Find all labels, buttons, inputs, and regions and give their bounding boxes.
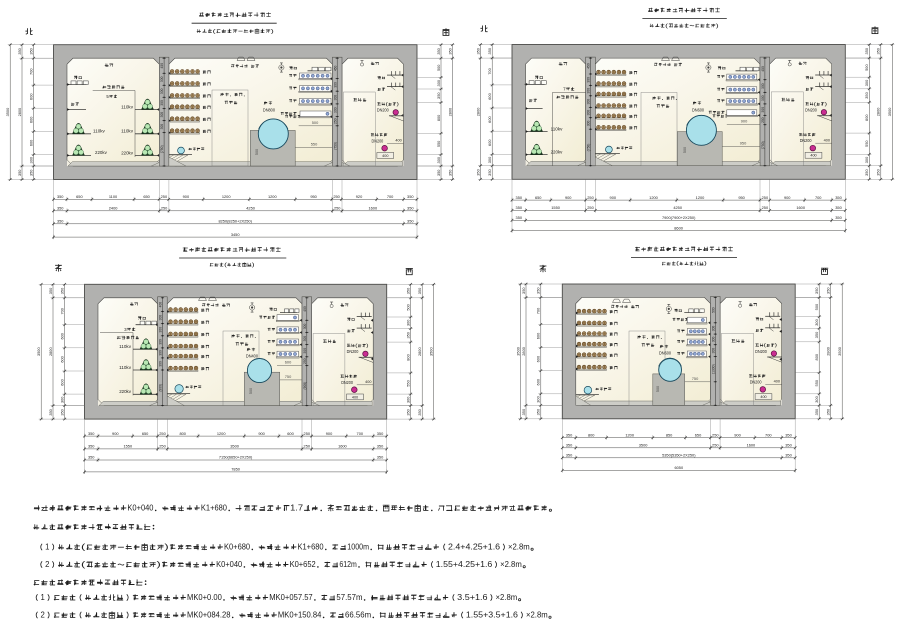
svg-text:350: 350 [864,169,869,176]
svg-text:300: 300 [864,79,869,86]
svg-text:650: 650 [535,195,542,200]
svg-text:900: 900 [734,432,741,437]
svg-text:350: 350 [487,47,492,54]
svg-text:220kv: 220kv [551,149,564,154]
svg-text:300: 300 [160,100,164,106]
svg-text:DN200: DN200 [347,349,359,354]
svg-text:550: 550 [406,379,411,386]
svg-text:8250(8250+2X250): 8250(8250+2X250) [218,219,252,224]
svg-text:750: 750 [285,374,292,379]
svg-text:300: 300 [711,326,715,332]
svg-text:900: 900 [258,431,265,436]
svg-text:300: 300 [761,107,765,113]
svg-text:612m: 612m [339,559,356,569]
svg-text:DN200: DN200 [755,349,767,354]
svg-text:600: 600 [29,116,34,123]
svg-text:350: 350 [864,91,869,98]
svg-text:950: 950 [740,141,747,146]
svg-text:700: 700 [765,432,772,437]
svg-text:3450: 3450 [231,232,240,237]
svg-text:(: ( [224,262,227,268]
svg-text:500: 500 [255,149,259,155]
svg-text:650: 650 [76,194,83,199]
svg-text:(750): (750) [333,142,337,150]
svg-text:300: 300 [29,156,34,163]
svg-text:350: 350 [876,47,881,54]
svg-text:300: 300 [406,396,411,403]
svg-text:350: 350 [785,453,792,458]
svg-text:110kv: 110kv [121,104,134,109]
svg-text:×2.8m: ×2.8m [508,542,530,552]
svg-text:900: 900 [784,195,791,200]
svg-text:3500: 3500 [230,444,239,449]
svg-text:400: 400 [824,138,830,142]
svg-text:350: 350 [436,47,441,54]
svg-text:920: 920 [356,194,363,199]
svg-text:400: 400 [395,139,401,143]
svg-text:900: 900 [183,194,190,199]
svg-text:66.56m: 66.56m [345,610,371,620]
svg-text:350: 350 [566,453,573,458]
svg-text:350: 350 [48,408,53,415]
svg-text:1550: 1550 [123,444,132,449]
svg-text:2800: 2800 [876,107,881,116]
svg-text:57.57m: 57.57m [336,592,362,602]
svg-text:800: 800 [588,432,595,437]
svg-text:300: 300 [159,361,163,367]
svg-text:DN200: DN200 [805,108,817,113]
svg-text:300: 300 [436,79,441,86]
svg-text:7150(6650+2X250): 7150(6650+2X250) [219,455,253,460]
svg-text:250: 250 [587,205,594,210]
svg-text:400: 400 [303,306,307,312]
svg-text:2800: 2800 [447,107,452,116]
svg-text:4250: 4250 [246,206,255,211]
svg-text:600: 600 [29,93,34,100]
svg-text:350: 350 [826,408,831,415]
svg-text:3500: 3500 [429,347,434,356]
svg-text:350: 350 [407,206,414,211]
svg-text:350: 350 [516,205,523,210]
svg-text:350: 350 [407,219,414,224]
svg-text:3500: 3500 [837,346,842,355]
svg-text:300: 300 [814,318,819,325]
svg-text:2800: 2800 [475,107,480,116]
svg-text:550: 550 [814,379,819,386]
svg-text:3.5+1.6: 3.5+1.6 [457,592,488,602]
svg-text:K0+652: K0+652 [290,559,316,569]
svg-text:350: 350 [407,194,414,199]
svg-text:350: 350 [475,168,480,175]
svg-text:250: 250 [761,117,765,123]
svg-text:600: 600 [487,139,492,146]
svg-text:400: 400 [365,380,371,384]
svg-text:600: 600 [536,332,541,339]
svg-text:300: 300 [587,110,591,116]
svg-text:300: 300 [814,395,819,402]
svg-text:(900): (900) [303,382,307,390]
svg-text:(750): (750) [587,144,591,152]
svg-text:300: 300 [711,336,715,342]
svg-text:450: 450 [587,63,591,69]
svg-text:300: 300 [333,82,337,88]
svg-text:250: 250 [304,431,311,436]
svg-text:600: 600 [60,332,65,339]
svg-text:1600: 1600 [338,444,347,449]
svg-text:650: 650 [143,194,150,199]
svg-text:900: 900 [610,195,617,200]
svg-text:300: 300 [160,124,164,130]
svg-text:350: 350 [17,47,22,54]
svg-text:3500: 3500 [887,107,892,116]
svg-text:350: 350 [521,287,526,294]
svg-text:1100: 1100 [109,194,118,199]
svg-text:700: 700 [536,307,541,314]
svg-text:350: 350 [487,169,492,176]
svg-text:(750): (750) [160,145,164,153]
svg-text:1: 1 [41,592,46,602]
svg-text:250: 250 [161,194,168,199]
svg-text:300: 300 [160,88,164,94]
svg-text:300: 300 [761,83,765,89]
svg-text:500: 500 [406,303,411,310]
svg-text:400: 400 [382,154,388,158]
svg-text:350: 350 [566,432,573,437]
svg-text:2800: 2800 [48,347,53,356]
svg-text:300: 300 [406,319,411,326]
svg-text:350: 350 [566,443,573,448]
svg-text:DN200: DN200 [377,108,389,113]
svg-text:300: 300 [333,95,337,101]
svg-text:2800: 2800 [417,347,422,356]
svg-text:7900(7900+2X250): 7900(7900+2X250) [662,215,696,220]
svg-text:220kv: 220kv [121,150,134,155]
svg-text:7850: 7850 [231,467,240,472]
svg-text:DN200: DN200 [750,380,762,385]
svg-text:110kv: 110kv [119,344,132,349]
svg-text:300: 300 [160,76,164,82]
svg-text:1.55+3.5+1.6: 1.55+3.5+1.6 [466,610,519,620]
svg-text:DN400: DN400 [246,354,258,359]
svg-text:300: 300 [60,396,65,403]
svg-text:400: 400 [760,395,766,399]
svg-text:2800: 2800 [17,107,22,116]
svg-text:600: 600 [536,355,541,362]
svg-text:5: 5 [106,94,109,99]
svg-text:300: 300 [761,95,765,101]
svg-text:3: 3 [124,327,127,333]
svg-text:700: 700 [815,195,822,200]
svg-text:600: 600 [287,431,294,436]
svg-text:MK0+0.00: MK0+0.00 [187,592,222,602]
svg-text:800: 800 [864,114,869,121]
svg-text:600: 600 [487,92,492,99]
svg-text:250: 250 [333,118,337,124]
svg-text:500: 500 [656,386,660,392]
svg-text:300: 300 [536,395,541,402]
svg-text:400: 400 [774,380,780,384]
svg-text:250: 250 [712,443,719,448]
svg-text:300: 300 [587,77,591,83]
svg-text:700: 700 [60,307,65,314]
svg-text:1: 1 [45,542,50,552]
svg-text:350: 350 [29,47,34,54]
svg-text:350: 350 [377,444,384,449]
svg-text:1550: 1550 [551,205,560,210]
svg-text:550: 550 [436,140,441,147]
svg-text:800: 800 [179,431,186,436]
svg-text:(: ( [81,542,86,552]
svg-text:300: 300 [159,339,163,345]
svg-text:): ) [252,262,255,268]
svg-text:DN600: DN600 [692,108,704,113]
svg-text:250: 250 [303,358,307,364]
svg-text:350: 350 [876,168,881,175]
svg-text:350: 350 [814,287,819,294]
svg-text:450: 450 [761,66,765,72]
svg-text:2: 2 [41,610,46,620]
svg-text:800: 800 [814,353,819,360]
svg-text:350: 350 [835,205,842,210]
svg-text:MK0+150.84: MK0+150.84 [278,610,322,620]
svg-text:350: 350 [447,47,452,54]
svg-text:250: 250 [304,444,311,449]
svg-text:6050: 6050 [674,465,683,470]
svg-text:700: 700 [487,67,492,74]
svg-text:×2.8m: ×2.8m [496,592,518,602]
svg-text:DN800: DN800 [263,108,275,113]
svg-text:300: 300 [160,112,164,118]
svg-text:500: 500 [814,303,819,310]
svg-text:1200: 1200 [217,431,226,436]
svg-text:300: 300 [159,315,163,321]
svg-text:250: 250 [159,444,166,449]
svg-text:350: 350 [436,92,441,99]
svg-text:350: 350 [88,455,95,460]
svg-text:350: 350 [60,287,65,294]
svg-text:800: 800 [436,114,441,121]
svg-text:250: 250 [159,431,166,436]
svg-text:(: ( [665,23,668,29]
svg-text:250: 250 [161,206,168,211]
svg-text:110kv: 110kv [119,365,132,370]
svg-text:250: 250 [587,195,594,200]
svg-text:500: 500 [436,64,441,71]
svg-text:): ) [704,261,707,267]
svg-text:650: 650 [142,431,149,436]
svg-text:400: 400 [810,154,816,158]
svg-text:1200: 1200 [649,195,658,200]
svg-text:7: 7 [563,87,566,93]
svg-text:350: 350 [406,331,411,338]
svg-text:400: 400 [352,395,358,399]
svg-text:DN200: DN200 [341,380,353,385]
svg-text:350: 350 [814,331,819,338]
svg-text:1200: 1200 [222,194,231,199]
svg-text:350: 350 [447,169,452,176]
svg-text:2: 2 [45,559,50,569]
svg-text:300: 300 [303,336,307,342]
svg-text:600: 600 [60,378,65,385]
svg-text:220kv: 220kv [119,389,132,394]
svg-text:DN200: DN200 [800,138,812,143]
svg-text:550: 550 [864,140,869,147]
svg-text:1.55+4.25+1.6: 1.55+4.25+1.6 [436,559,493,569]
svg-text:): ) [271,29,274,35]
svg-text:250: 250 [762,205,769,210]
svg-text:300: 300 [159,350,163,356]
svg-text:350: 350 [536,287,541,294]
svg-text:K1+680: K1+680 [201,503,227,513]
svg-text:(: ( [676,261,679,267]
svg-text:850: 850 [666,432,673,437]
svg-text:500: 500 [711,307,715,313]
svg-text:350: 350 [814,408,819,415]
svg-text:110kv: 110kv [551,126,564,131]
svg-text:(1300): (1300) [711,364,715,374]
svg-text:3500: 3500 [5,107,10,116]
svg-text:): ) [716,23,719,29]
svg-text:350: 350 [88,431,95,436]
svg-text:2800: 2800 [826,346,831,355]
svg-text:350: 350 [516,195,523,200]
svg-text:1.7: 1.7 [290,503,303,513]
svg-text:250: 250 [712,432,719,437]
svg-text:600: 600 [536,378,541,385]
svg-text:): ) [157,559,162,569]
svg-text:300: 300 [587,99,591,105]
svg-text:220kv: 220kv [95,150,108,155]
svg-text:550: 550 [311,142,318,147]
svg-text:5350(5350+2X250): 5350(5350+2X250) [662,453,696,458]
svg-text:350: 350 [88,444,95,449]
svg-text:500: 500 [249,388,253,394]
svg-text:350: 350 [377,431,384,436]
svg-text:110kv: 110kv [121,129,134,134]
svg-text:DN600: DN600 [659,351,671,356]
svg-text:350: 350 [516,215,523,220]
svg-text:600: 600 [285,360,292,365]
svg-text:2800: 2800 [521,346,526,355]
svg-text:250: 250 [762,195,769,200]
svg-text:350: 350 [864,47,869,54]
svg-text:350: 350 [835,215,842,220]
svg-text:300: 300 [303,348,307,354]
svg-text:350: 350 [406,408,411,415]
svg-text:1000m: 1000m [347,542,369,552]
svg-text:900: 900 [112,431,119,436]
svg-text:450: 450 [333,65,337,71]
svg-text:1600: 1600 [747,443,756,448]
svg-text:K0+040: K0+040 [216,559,242,569]
svg-text:DN200: DN200 [372,138,384,143]
svg-text:K0+040: K0+040 [127,503,153,513]
svg-text:350: 350 [29,169,34,176]
svg-text:3500: 3500 [36,347,41,356]
svg-text:950: 950 [738,195,745,200]
svg-text:250: 250 [334,206,341,211]
svg-text:1200: 1200 [625,432,634,437]
svg-text:350: 350 [826,287,831,294]
svg-text:400: 400 [159,302,163,308]
svg-text:900: 900 [741,119,748,124]
svg-text:300: 300 [303,323,307,329]
svg-text:300: 300 [333,107,337,113]
svg-text:1200: 1200 [696,195,705,200]
svg-text:300: 300 [436,156,441,163]
svg-text:650: 650 [695,432,702,437]
svg-text:350: 350 [835,195,842,200]
svg-text:4250: 4250 [673,205,682,210]
svg-text:(750): (750) [761,141,765,149]
svg-text:(: ( [81,559,86,569]
svg-text:350: 350 [785,432,792,437]
svg-text:750: 750 [692,376,699,381]
svg-text:1600: 1600 [368,206,377,211]
svg-text:×2.8m: ×2.8m [526,610,548,620]
svg-text:600: 600 [487,116,492,123]
svg-text:×2.8m: ×2.8m [500,559,522,569]
svg-text:700: 700 [357,431,364,436]
svg-text:800: 800 [406,353,411,360]
svg-text:350: 350 [48,287,53,294]
svg-text:2400: 2400 [109,206,118,211]
svg-text:900: 900 [565,195,572,200]
svg-text:500: 500 [864,64,869,71]
svg-text:300: 300 [159,327,163,333]
svg-text:K0+680: K0+680 [224,542,250,552]
svg-text:1600: 1600 [796,205,805,210]
svg-text:350: 350 [17,169,22,176]
svg-text:500: 500 [312,120,319,125]
svg-text:350: 350 [57,219,64,224]
svg-text:350: 350 [57,206,64,211]
svg-text:): ) [164,542,169,552]
svg-text:350: 350 [417,287,422,294]
svg-text:250: 250 [333,194,340,199]
svg-text:600: 600 [60,355,65,362]
svg-text:450: 450 [160,63,164,69]
svg-text:3500: 3500 [639,443,648,448]
svg-text:110kv: 110kv [93,129,106,134]
svg-text:350: 350 [475,47,480,54]
svg-text:8600: 8600 [674,225,683,230]
svg-text:350: 350 [436,169,441,176]
svg-text:(: ( [213,29,216,35]
svg-text:900: 900 [326,431,333,436]
svg-text:350: 350 [406,287,411,294]
svg-text:950: 950 [310,194,317,199]
svg-text:K1+680: K1+680 [298,542,324,552]
svg-text:600: 600 [29,139,34,146]
svg-text:350: 350 [536,408,541,415]
svg-text:2.4+4.25+1.6: 2.4+4.25+1.6 [448,542,501,552]
svg-text:300: 300 [864,156,869,163]
svg-text:700: 700 [29,68,34,75]
svg-text:300: 300 [587,120,591,126]
svg-text:(900): (900) [159,384,163,392]
svg-text:MK0+057.57: MK0+057.57 [269,592,313,602]
svg-text:350: 350 [785,443,792,448]
svg-text:1200: 1200 [268,194,277,199]
svg-text:700: 700 [387,194,394,199]
svg-text:350: 350 [377,455,384,460]
svg-text:350: 350 [417,408,422,415]
svg-text:3500: 3500 [515,346,520,355]
svg-text:300: 300 [587,88,591,94]
svg-text:350: 350 [57,194,64,199]
svg-text:350: 350 [60,408,65,415]
